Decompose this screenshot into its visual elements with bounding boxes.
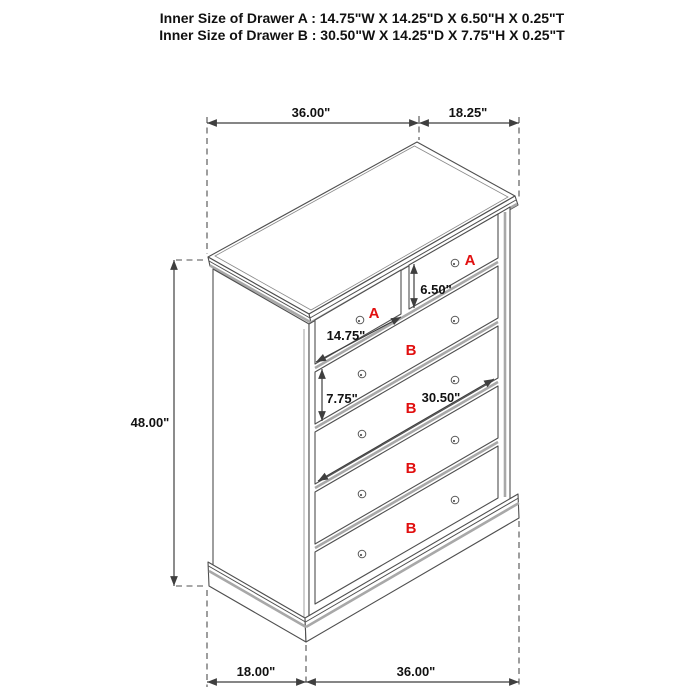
drawer-b3-label: B bbox=[406, 460, 417, 477]
drawer-a-right-label: A bbox=[465, 252, 476, 269]
knob-a-right-dot bbox=[453, 263, 455, 265]
knob-b4-right bbox=[451, 496, 459, 504]
knob-b2-left-dot bbox=[360, 434, 362, 436]
knob-b2-right bbox=[451, 376, 459, 384]
dim-label-top-width: 36.00" bbox=[292, 105, 331, 120]
knob-a-left-dot bbox=[358, 320, 360, 322]
diagram-canvas: Inner Size of Drawer A : 14.75"W X 14.25… bbox=[0, 0, 700, 700]
dim-label-bottom-width: 36.00" bbox=[397, 664, 436, 679]
header: Inner Size of Drawer A : 14.75"W X 14.25… bbox=[159, 10, 565, 43]
dim-label-bottom-depth: 18.00" bbox=[237, 664, 276, 679]
header-drawer-a-spec: Inner Size of Drawer A : 14.75"W X 14.25… bbox=[160, 10, 565, 26]
knob-a-left bbox=[356, 316, 364, 324]
knob-b2-right-dot bbox=[453, 380, 455, 382]
dim-label-drawer-b-width: 30.50" bbox=[422, 390, 461, 405]
knob-b4-right-dot bbox=[453, 500, 455, 502]
dim-label-drawer-b-height: 7.75" bbox=[326, 391, 357, 406]
dim-label-drawer-a-height: 6.50" bbox=[420, 282, 451, 297]
knob-b1-right-dot bbox=[453, 320, 455, 322]
header-drawer-b-spec: Inner Size of Drawer B : 30.50"W X 14.25… bbox=[159, 27, 565, 43]
knob-b1-left bbox=[358, 370, 366, 378]
knob-b3-right-dot bbox=[453, 440, 455, 442]
knob-b4-left-dot bbox=[360, 554, 362, 556]
knob-b3-left-dot bbox=[360, 494, 362, 496]
knob-b1-right bbox=[451, 316, 459, 324]
knob-b4-left bbox=[358, 550, 366, 558]
knob-a-right bbox=[451, 259, 459, 267]
knob-b2-left bbox=[358, 430, 366, 438]
drawer-b4-label: B bbox=[406, 520, 417, 537]
knob-b3-right bbox=[451, 436, 459, 444]
dim-label-top-depth: 18.25" bbox=[449, 105, 488, 120]
side-panel bbox=[213, 269, 309, 625]
dim-label-height: 48.00" bbox=[131, 415, 170, 430]
furniture-dimension-diagram: Inner Size of Drawer A : 14.75"W X 14.25… bbox=[0, 0, 700, 700]
drawer-a-left-label: A bbox=[369, 305, 380, 322]
drawer-b2-label: B bbox=[406, 400, 417, 417]
dim-label-drawer-a-width: 14.75" bbox=[327, 328, 366, 343]
knob-b3-left bbox=[358, 490, 366, 498]
drawer-b1-label: B bbox=[406, 342, 417, 359]
knob-b1-left-dot bbox=[360, 374, 362, 376]
